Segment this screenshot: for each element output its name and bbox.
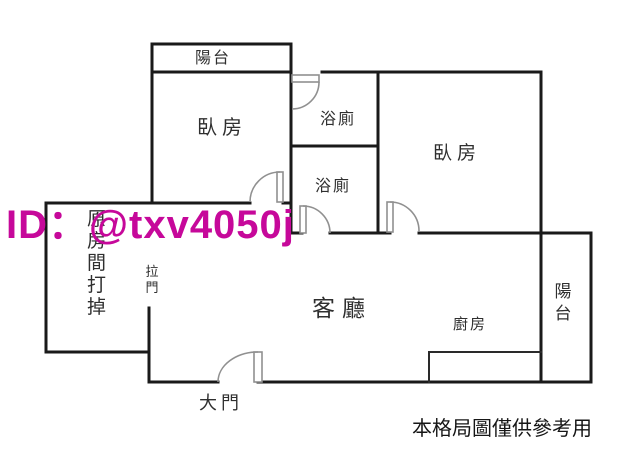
door-main-entrance-icon: [218, 352, 262, 382]
door-bathroom-lower-icon: [300, 206, 330, 233]
door-bathroom-upper-icon: [292, 75, 319, 109]
door-bedroom-right-icon: [387, 202, 419, 232]
door-symbols: [0, 0, 640, 457]
door-bedroom-left-icon: [250, 172, 283, 202]
floor-plan-page: { "title": "apartment floor plan", "wate…: [0, 0, 640, 457]
